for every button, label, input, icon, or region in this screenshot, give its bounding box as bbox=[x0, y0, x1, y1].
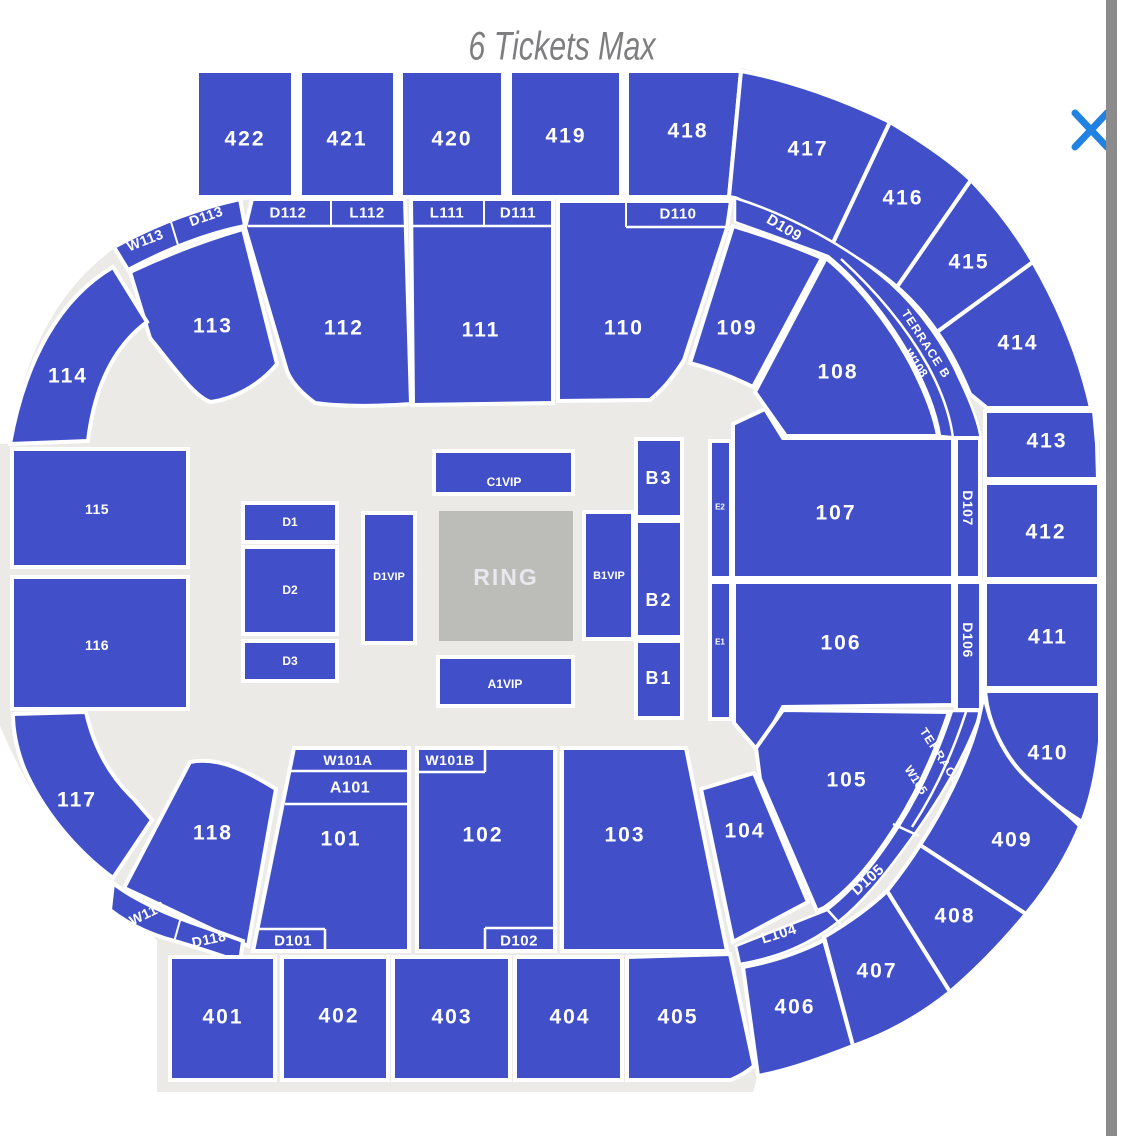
svg-text:E1: E1 bbox=[715, 638, 725, 647]
svg-text:A1VIP: A1VIP bbox=[488, 677, 523, 691]
svg-text:422: 422 bbox=[224, 128, 265, 151]
svg-text:419: 419 bbox=[545, 125, 586, 148]
svg-text:415: 415 bbox=[948, 251, 989, 274]
svg-text:108: 108 bbox=[817, 361, 858, 384]
svg-text:B1VIP: B1VIP bbox=[593, 570, 625, 582]
svg-text:411: 411 bbox=[1028, 626, 1068, 649]
svg-text:407: 407 bbox=[856, 960, 897, 983]
svg-text:417: 417 bbox=[787, 138, 828, 161]
svg-text:402: 402 bbox=[318, 1005, 359, 1028]
svg-text:117: 117 bbox=[57, 789, 97, 812]
svg-text:D107: D107 bbox=[960, 490, 976, 525]
svg-text:118: 118 bbox=[193, 822, 233, 845]
svg-text:115: 115 bbox=[85, 501, 109, 517]
svg-text:413: 413 bbox=[1026, 430, 1067, 453]
svg-text:D1VIP: D1VIP bbox=[373, 571, 405, 583]
svg-text:D112: D112 bbox=[269, 205, 306, 222]
svg-text:110: 110 bbox=[604, 317, 644, 340]
svg-text:412: 412 bbox=[1025, 521, 1066, 544]
svg-text:418: 418 bbox=[667, 120, 708, 143]
svg-text:414: 414 bbox=[997, 332, 1038, 355]
svg-text:L112: L112 bbox=[349, 205, 384, 222]
svg-text:106: 106 bbox=[820, 632, 861, 655]
svg-text:105: 105 bbox=[826, 769, 867, 792]
svg-text:405: 405 bbox=[657, 1006, 698, 1029]
svg-text:W101B: W101B bbox=[425, 752, 474, 768]
svg-text:113: 113 bbox=[193, 315, 233, 338]
svg-text:D111: D111 bbox=[500, 205, 536, 222]
svg-text:D2: D2 bbox=[282, 583, 298, 597]
svg-text:409: 409 bbox=[991, 829, 1032, 852]
svg-text:408: 408 bbox=[934, 905, 975, 928]
svg-text:112: 112 bbox=[324, 317, 364, 340]
svg-text:L111: L111 bbox=[430, 205, 465, 222]
svg-text:E2: E2 bbox=[715, 503, 725, 512]
svg-text:420: 420 bbox=[431, 128, 472, 151]
svg-text:103: 103 bbox=[604, 824, 645, 847]
svg-text:410: 410 bbox=[1027, 742, 1068, 765]
svg-text:116: 116 bbox=[85, 637, 109, 653]
svg-text:D110: D110 bbox=[659, 206, 696, 223]
svg-text:B2: B2 bbox=[645, 590, 672, 610]
svg-text:A101: A101 bbox=[330, 780, 370, 797]
svg-text:401: 401 bbox=[202, 1006, 243, 1029]
svg-text:D3: D3 bbox=[282, 654, 298, 668]
svg-text:406: 406 bbox=[774, 996, 815, 1019]
svg-text:RING: RING bbox=[473, 564, 539, 590]
svg-text:109: 109 bbox=[716, 317, 757, 340]
svg-text:403: 403 bbox=[431, 1006, 472, 1029]
svg-text:107: 107 bbox=[815, 502, 856, 525]
svg-text:D101: D101 bbox=[274, 933, 312, 950]
svg-text:416: 416 bbox=[882, 187, 923, 210]
svg-text:W101A: W101A bbox=[323, 752, 372, 768]
svg-text:C1VIP: C1VIP bbox=[487, 475, 522, 489]
svg-text:114: 114 bbox=[48, 365, 88, 388]
svg-text:102: 102 bbox=[462, 824, 503, 847]
svg-text:104: 104 bbox=[724, 820, 765, 843]
svg-text:6 Tickets Max: 6 Tickets Max bbox=[468, 23, 656, 68]
svg-text:421: 421 bbox=[326, 128, 367, 151]
svg-text:D1: D1 bbox=[282, 515, 298, 529]
svg-text:111: 111 bbox=[462, 319, 501, 342]
svg-text:B3: B3 bbox=[645, 468, 672, 488]
svg-text:D102: D102 bbox=[500, 933, 538, 950]
svg-text:D106: D106 bbox=[960, 622, 976, 657]
svg-text:404: 404 bbox=[549, 1006, 590, 1029]
svg-text:101: 101 bbox=[320, 828, 361, 851]
svg-text:B1: B1 bbox=[645, 668, 672, 688]
